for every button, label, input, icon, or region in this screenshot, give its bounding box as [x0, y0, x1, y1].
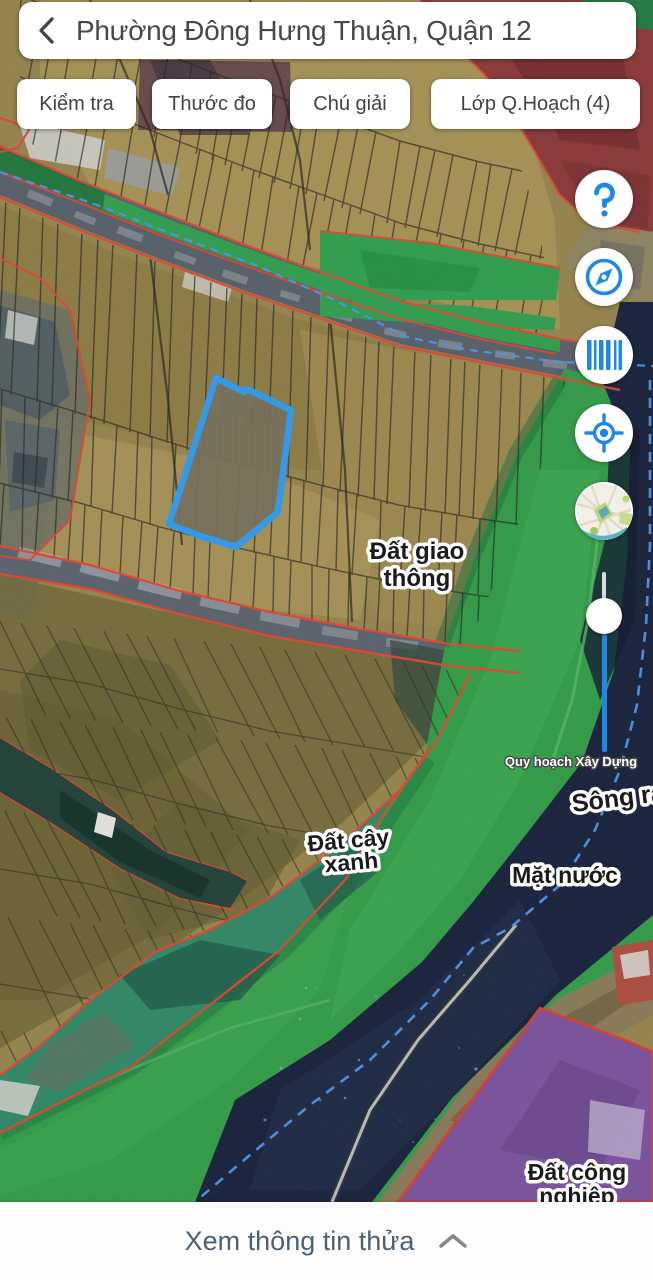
- svg-text:xanh: xanh: [323, 847, 379, 878]
- svg-text:Quy hoạch Xây Dựng: Quy hoạch Xây Dựng: [505, 754, 637, 769]
- svg-text:Mặt nước: Mặt nước: [512, 862, 618, 888]
- svg-text:nghiệp: nghiệp: [539, 1183, 614, 1202]
- svg-text:thông: thông: [384, 565, 451, 592]
- svg-text:Đất công: Đất công: [528, 1159, 626, 1185]
- svg-text:Đất giao: Đất giao: [370, 538, 465, 565]
